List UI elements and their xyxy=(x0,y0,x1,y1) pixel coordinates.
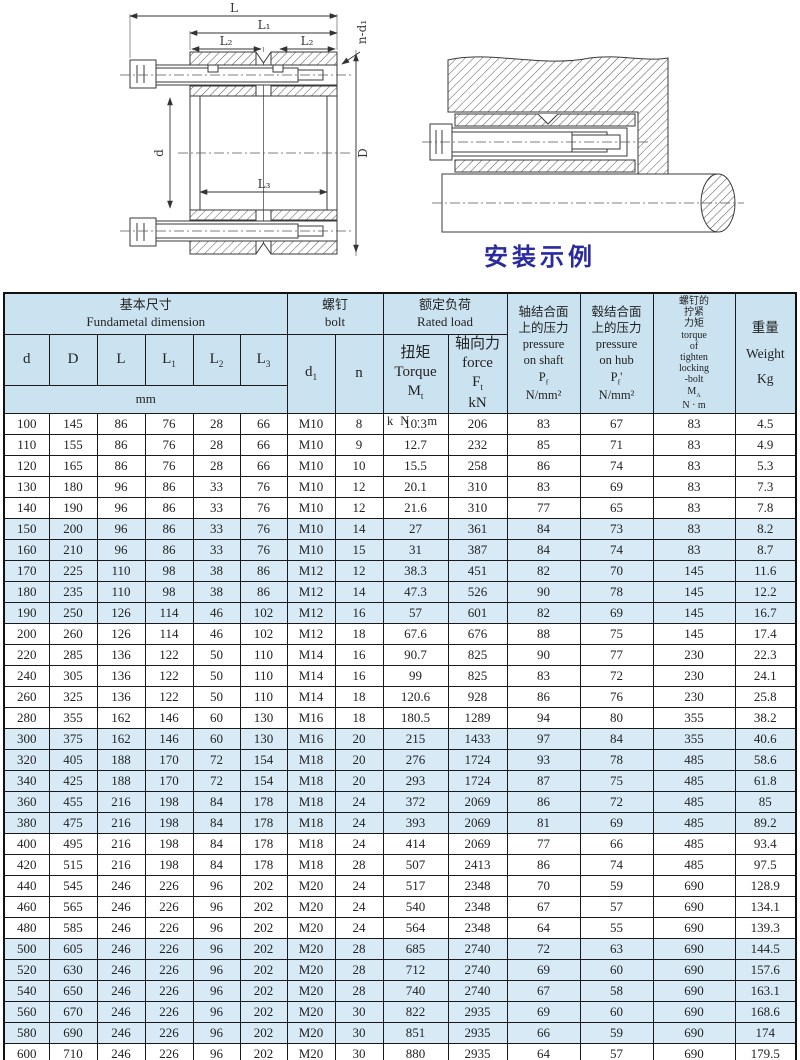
cell: 122 xyxy=(145,644,193,665)
cell: 360 xyxy=(4,791,49,812)
table-row: 52063024622696202M202871227406960690157.… xyxy=(4,959,796,980)
cell: 230 xyxy=(653,644,735,665)
cell: 57 xyxy=(383,602,448,623)
cell: 65 xyxy=(580,497,653,518)
cell: 202 xyxy=(240,938,287,959)
cell: 58.6 xyxy=(735,749,796,770)
cell: 280 xyxy=(4,707,49,728)
cell: 16 xyxy=(335,665,383,686)
cell: 122 xyxy=(145,686,193,707)
cell: M10 xyxy=(287,434,335,455)
cell: 545 xyxy=(49,875,97,896)
cell: 2348 xyxy=(448,875,507,896)
cell: 226 xyxy=(145,896,193,917)
cell: 84 xyxy=(507,539,580,560)
cell: 485 xyxy=(653,833,735,854)
col-L3: L3 xyxy=(240,335,287,386)
cell: M10 xyxy=(287,476,335,497)
table-row: 40049521619884178M18244142069776648593.4 xyxy=(4,833,796,854)
cell: 96 xyxy=(97,476,145,497)
dim-label-D: D xyxy=(356,148,370,158)
cell: 76 xyxy=(240,497,287,518)
cell: 76 xyxy=(580,686,653,707)
cell: 1724 xyxy=(448,770,507,791)
cell: M10 xyxy=(287,539,335,560)
cell: 170 xyxy=(145,770,193,791)
cell: 145 xyxy=(653,623,735,644)
cell: 77 xyxy=(580,644,653,665)
cell: 198 xyxy=(145,791,193,812)
cell: 86 xyxy=(507,455,580,476)
cell: 178 xyxy=(240,812,287,833)
cell: 565 xyxy=(49,896,97,917)
cell: 28 xyxy=(193,413,240,434)
cell: 38.2 xyxy=(735,707,796,728)
cell: 96 xyxy=(97,539,145,560)
cell: 822 xyxy=(383,1001,448,1022)
cell: 500 xyxy=(4,938,49,959)
cell: 66 xyxy=(240,413,287,434)
table-row: 19025012611446102M121657601826914516.7 xyxy=(4,602,796,623)
cell: 122 xyxy=(145,665,193,686)
cell: 15 xyxy=(335,539,383,560)
cell: 8.2 xyxy=(735,518,796,539)
cell: 33 xyxy=(193,497,240,518)
cell: 84 xyxy=(193,791,240,812)
cell: 93.4 xyxy=(735,833,796,854)
cell: M18 xyxy=(287,770,335,791)
cell: 425 xyxy=(49,770,97,791)
cell: 70 xyxy=(580,560,653,581)
cell: M16 xyxy=(287,728,335,749)
cell: 77 xyxy=(507,833,580,854)
cell: 64 xyxy=(507,1043,580,1060)
cell: 69 xyxy=(580,602,653,623)
cell: 96 xyxy=(193,1022,240,1043)
cell: 144.5 xyxy=(735,938,796,959)
cell: 33 xyxy=(193,518,240,539)
cell: 246 xyxy=(97,896,145,917)
cell: 310 xyxy=(448,476,507,497)
cell: 16 xyxy=(335,602,383,623)
cell: 540 xyxy=(383,896,448,917)
header-bolt: 螺钉bolt xyxy=(287,293,383,335)
cell: 72 xyxy=(580,791,653,812)
cell: 188 xyxy=(97,749,145,770)
table-row: 60071024622696202M203088029356457690179.… xyxy=(4,1043,796,1060)
cell: 66 xyxy=(507,1022,580,1043)
cell: 83 xyxy=(507,665,580,686)
cell: 98 xyxy=(145,560,193,581)
cell: 2069 xyxy=(448,791,507,812)
cell: 225 xyxy=(49,560,97,581)
table-row: 24030513612250110M141699825837223024.1 xyxy=(4,665,796,686)
cell: 178 xyxy=(240,791,287,812)
cell: 96 xyxy=(193,1001,240,1022)
cell: 580 xyxy=(4,1022,49,1043)
cell: 420 xyxy=(4,854,49,875)
cell: 2935 xyxy=(448,1043,507,1060)
cell: 83 xyxy=(507,413,580,434)
cell: 86 xyxy=(145,518,193,539)
cell: 74 xyxy=(580,539,653,560)
cell: 93 xyxy=(507,749,580,770)
cell: 1724 xyxy=(448,749,507,770)
cell: 30 xyxy=(335,1022,383,1043)
table-row: 38047521619884178M18243932069816948589.2 xyxy=(4,812,796,833)
cell: 202 xyxy=(240,1001,287,1022)
cell: 59 xyxy=(580,1022,653,1043)
cell: 305 xyxy=(49,665,97,686)
installation-caption: 安装示例 xyxy=(484,237,596,272)
cell: 76 xyxy=(240,518,287,539)
cell: 246 xyxy=(97,1043,145,1060)
cell: 71 xyxy=(580,434,653,455)
cell: 685 xyxy=(383,938,448,959)
cell: 20 xyxy=(335,749,383,770)
cell: 12 xyxy=(335,476,383,497)
cell: 86 xyxy=(145,539,193,560)
cell: 145 xyxy=(653,560,735,581)
dim-label-d: d xyxy=(152,149,166,157)
cell: 2069 xyxy=(448,812,507,833)
cell: 83 xyxy=(653,413,735,434)
col-L: L xyxy=(97,335,145,386)
cell: 86 xyxy=(507,791,580,812)
cell: 690 xyxy=(653,896,735,917)
cell: 76 xyxy=(145,455,193,476)
cell: 140 xyxy=(4,497,49,518)
cell: 150 xyxy=(4,518,49,539)
cell: 72 xyxy=(193,770,240,791)
cell: 190 xyxy=(4,602,49,623)
cell: 355 xyxy=(653,728,735,749)
cell: 145 xyxy=(653,581,735,602)
cell: 220 xyxy=(4,644,49,665)
cell: 393 xyxy=(383,812,448,833)
cell: 66 xyxy=(240,455,287,476)
cell: 517 xyxy=(383,875,448,896)
cell: 86 xyxy=(145,476,193,497)
cell: 226 xyxy=(145,917,193,938)
table-row: 10014586762866M10810.32068367834.5 xyxy=(4,413,796,434)
table-body: 10014586762866M10810.32068367834.5110155… xyxy=(4,413,796,1060)
cell: 216 xyxy=(97,854,145,875)
cell: 246 xyxy=(97,959,145,980)
cell: 851 xyxy=(383,1022,448,1043)
cell: 84 xyxy=(193,833,240,854)
cell: 361 xyxy=(448,518,507,539)
cell: M10 xyxy=(287,518,335,539)
cell: 15.5 xyxy=(383,455,448,476)
dim-label-L2-right: L₂ xyxy=(301,34,314,48)
cell: 99 xyxy=(383,665,448,686)
cell: 120 xyxy=(4,455,49,476)
cell: 102 xyxy=(240,602,287,623)
cell: 145 xyxy=(49,413,97,434)
cell: 86 xyxy=(145,497,193,518)
cell: 157.6 xyxy=(735,959,796,980)
cell: 200 xyxy=(4,623,49,644)
cell: 216 xyxy=(97,833,145,854)
cell: 98 xyxy=(145,581,193,602)
cell: 5.3 xyxy=(735,455,796,476)
cell: M20 xyxy=(287,938,335,959)
cell: 102 xyxy=(240,623,287,644)
cell: 18 xyxy=(335,686,383,707)
table-row: 36045521619884178M18243722069867248585 xyxy=(4,791,796,812)
cell: 110 xyxy=(4,434,49,455)
cell: 74 xyxy=(580,455,653,476)
cell: 16.7 xyxy=(735,602,796,623)
cell: 130 xyxy=(240,728,287,749)
cell: 10.3 xyxy=(383,413,448,434)
cell: 134.1 xyxy=(735,896,796,917)
cell: 83 xyxy=(653,497,735,518)
cell: 585 xyxy=(49,917,97,938)
cell: 77 xyxy=(507,497,580,518)
cell: 58 xyxy=(580,980,653,1001)
cell: 154 xyxy=(240,770,287,791)
cell: 69 xyxy=(580,476,653,497)
cell: 67.6 xyxy=(383,623,448,644)
cell: 2069 xyxy=(448,833,507,854)
cell: 24 xyxy=(335,896,383,917)
table-row: 16021096863376M1015313878474838.7 xyxy=(4,539,796,560)
cell: 7.8 xyxy=(735,497,796,518)
cell: 24 xyxy=(335,833,383,854)
col-D: D xyxy=(49,335,97,386)
cell: 28 xyxy=(335,938,383,959)
cell: 210 xyxy=(49,539,97,560)
cell: 174 xyxy=(735,1022,796,1043)
cell: 100 xyxy=(4,413,49,434)
cell: 526 xyxy=(448,581,507,602)
cell: 690 xyxy=(653,917,735,938)
cell: 11.6 xyxy=(735,560,796,581)
cell: 285 xyxy=(49,644,97,665)
cell: 72 xyxy=(580,665,653,686)
cell: 216 xyxy=(97,791,145,812)
table-row: 20026012611446102M121867.6676887514517.4 xyxy=(4,623,796,644)
table-header: 基本尺寸Fundametal dimension 螺钉bolt 额定负荷Rate… xyxy=(4,293,796,413)
torque-lines: 扭矩TorqueMt xyxy=(394,345,436,399)
table-row: 30037516214660130M16202151433978435540.6 xyxy=(4,728,796,749)
cell: 178 xyxy=(240,854,287,875)
table-row: 11015586762866M10912.72328571834.9 xyxy=(4,434,796,455)
cell: 70 xyxy=(507,875,580,896)
cell: 72 xyxy=(193,749,240,770)
table-row: 54065024622696202M202874027406758690163.… xyxy=(4,980,796,1001)
cell: 28 xyxy=(193,455,240,476)
cell: 83 xyxy=(653,539,735,560)
cell: 25.8 xyxy=(735,686,796,707)
cell: 155 xyxy=(49,434,97,455)
cell: 690 xyxy=(653,875,735,896)
cell: 202 xyxy=(240,1022,287,1043)
cell: 230 xyxy=(653,665,735,686)
unit-mm: mm xyxy=(4,386,287,414)
cell: 81 xyxy=(507,812,580,833)
cell: 96 xyxy=(193,1043,240,1060)
cell: 188 xyxy=(97,770,145,791)
cell: 258 xyxy=(448,455,507,476)
cell: 676 xyxy=(448,623,507,644)
cell: 28 xyxy=(193,434,240,455)
col-torque: 扭矩TorqueMt kN·m xyxy=(383,335,448,414)
cell: 601 xyxy=(448,602,507,623)
cell: 690 xyxy=(653,959,735,980)
cell: 60 xyxy=(580,1001,653,1022)
cell: 825 xyxy=(448,665,507,686)
cell: 10 xyxy=(335,455,383,476)
cell: 690 xyxy=(653,1043,735,1060)
col-d: d xyxy=(4,335,49,386)
cell: 33 xyxy=(193,476,240,497)
cell: 90 xyxy=(507,581,580,602)
dim-label-L2-left: L₂ xyxy=(220,34,233,48)
cell: 12.2 xyxy=(735,581,796,602)
cell: 18 xyxy=(335,707,383,728)
cell: 226 xyxy=(145,1001,193,1022)
cell: 38 xyxy=(193,581,240,602)
cell: 1433 xyxy=(448,728,507,749)
cell: 83 xyxy=(653,434,735,455)
cell: 120.6 xyxy=(383,686,448,707)
cell: 605 xyxy=(49,938,97,959)
cell: M20 xyxy=(287,917,335,938)
cell: 690 xyxy=(653,1022,735,1043)
cell: 21.6 xyxy=(383,497,448,518)
cell: 126 xyxy=(97,602,145,623)
cell: 96 xyxy=(193,938,240,959)
col-L1: L1 xyxy=(145,335,193,386)
dim-label-nd1: n-d₁ xyxy=(355,20,369,44)
cell: 475 xyxy=(49,812,97,833)
cell: 33 xyxy=(193,539,240,560)
cell: 226 xyxy=(145,980,193,1001)
cell: 20.1 xyxy=(383,476,448,497)
cell: 96 xyxy=(193,980,240,1001)
cell: M12 xyxy=(287,581,335,602)
cell: 485 xyxy=(653,770,735,791)
cell: 276 xyxy=(383,749,448,770)
cell: M14 xyxy=(287,644,335,665)
cell: 83 xyxy=(507,476,580,497)
table-row: 48058524622696202M202456423486455690139.… xyxy=(4,917,796,938)
cell: 136 xyxy=(97,686,145,707)
cell: 38 xyxy=(193,560,240,581)
cell: 240 xyxy=(4,665,49,686)
table-row: 34042518817072154M18202931724877548561.8 xyxy=(4,770,796,791)
cell: 114 xyxy=(145,623,193,644)
cell: M20 xyxy=(287,1043,335,1060)
cell: 31 xyxy=(383,539,448,560)
cell: 246 xyxy=(97,1022,145,1043)
cell: 190 xyxy=(49,497,97,518)
cell: 4.5 xyxy=(735,413,796,434)
table-row: 42051521619884178M18285072413867448597.5 xyxy=(4,854,796,875)
cell: 405 xyxy=(49,749,97,770)
cell: M20 xyxy=(287,1001,335,1022)
cell: 485 xyxy=(653,854,735,875)
cell: 928 xyxy=(448,686,507,707)
cell: 139.3 xyxy=(735,917,796,938)
cell: 380 xyxy=(4,812,49,833)
cell: 178 xyxy=(240,833,287,854)
table-row: 58069024622696202M203085129356659690174 xyxy=(4,1022,796,1043)
col-axial-force: 轴向力forceFtkN xyxy=(448,335,507,414)
cell: 230 xyxy=(653,686,735,707)
cell: 325 xyxy=(49,686,97,707)
cell: 310 xyxy=(448,497,507,518)
cell: 2348 xyxy=(448,917,507,938)
cell: M20 xyxy=(287,875,335,896)
cell: 414 xyxy=(383,833,448,854)
cell: 246 xyxy=(97,1001,145,1022)
cell: 12 xyxy=(335,497,383,518)
cell: 83 xyxy=(653,518,735,539)
cell: 2935 xyxy=(448,1022,507,1043)
cell: 72 xyxy=(507,938,580,959)
cell: 24.1 xyxy=(735,665,796,686)
cell: 180 xyxy=(49,476,97,497)
cell: 2740 xyxy=(448,980,507,1001)
cell: 507 xyxy=(383,854,448,875)
cell: 2413 xyxy=(448,854,507,875)
cell: 76 xyxy=(145,413,193,434)
cell: M20 xyxy=(287,959,335,980)
installation-example-drawing xyxy=(420,52,750,242)
cell: M18 xyxy=(287,833,335,854)
cell: 451 xyxy=(448,560,507,581)
cell: 96 xyxy=(97,497,145,518)
header-weight: 重量WeightKg xyxy=(735,293,796,413)
cell: 50 xyxy=(193,644,240,665)
cell: 170 xyxy=(4,560,49,581)
cell: M18 xyxy=(287,854,335,875)
cell: 110 xyxy=(97,560,145,581)
cell: 84 xyxy=(193,854,240,875)
cell: 226 xyxy=(145,1022,193,1043)
cell: 2740 xyxy=(448,959,507,980)
cell: 86 xyxy=(240,560,287,581)
table-row: 13018096863376M101220.13108369837.3 xyxy=(4,476,796,497)
cell: 86 xyxy=(97,434,145,455)
cell: 460 xyxy=(4,896,49,917)
cell: 12.7 xyxy=(383,434,448,455)
cell: 9 xyxy=(335,434,383,455)
table-row: 44054524622696202M202451723487059690128.… xyxy=(4,875,796,896)
cell: 84 xyxy=(507,518,580,539)
cell: 67 xyxy=(507,896,580,917)
cell: 2740 xyxy=(448,938,507,959)
cell: 46 xyxy=(193,623,240,644)
cell: 67 xyxy=(507,980,580,1001)
cell: 226 xyxy=(145,938,193,959)
cell: 226 xyxy=(145,875,193,896)
cell: 163.1 xyxy=(735,980,796,1001)
cell: 66 xyxy=(240,434,287,455)
cell: 88 xyxy=(507,623,580,644)
cell: 226 xyxy=(145,1043,193,1060)
cell: 355 xyxy=(49,707,97,728)
cell: 30 xyxy=(335,1043,383,1060)
cell: 198 xyxy=(145,812,193,833)
header-locking-bolt-torque: 螺钉的拧紧力矩torqueoftightenlocking-boltMAN · … xyxy=(653,293,735,413)
table-row: 56067024622696202M203082229356960690168.… xyxy=(4,1001,796,1022)
table-row: 170225110983886M121238.3451827014511.6 xyxy=(4,560,796,581)
